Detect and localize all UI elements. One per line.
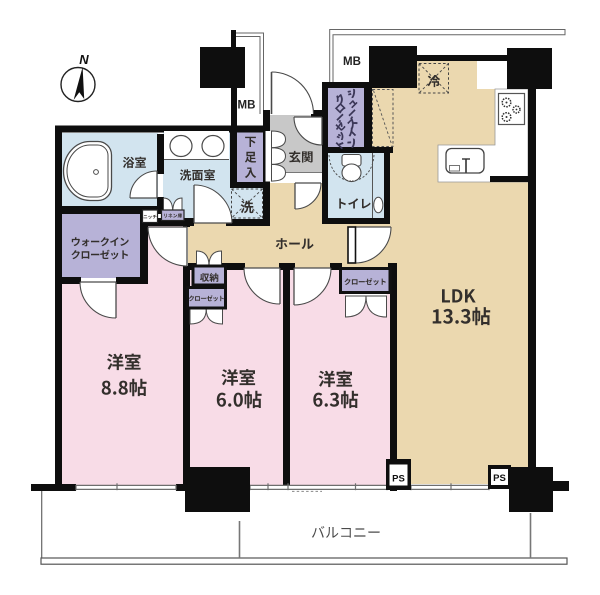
svg-text:PS: PS bbox=[493, 473, 506, 484]
svg-text:MB: MB bbox=[343, 56, 361, 68]
svg-text:N: N bbox=[79, 52, 89, 67]
svg-text:PS: PS bbox=[392, 474, 405, 485]
svg-text:MB: MB bbox=[238, 100, 256, 112]
